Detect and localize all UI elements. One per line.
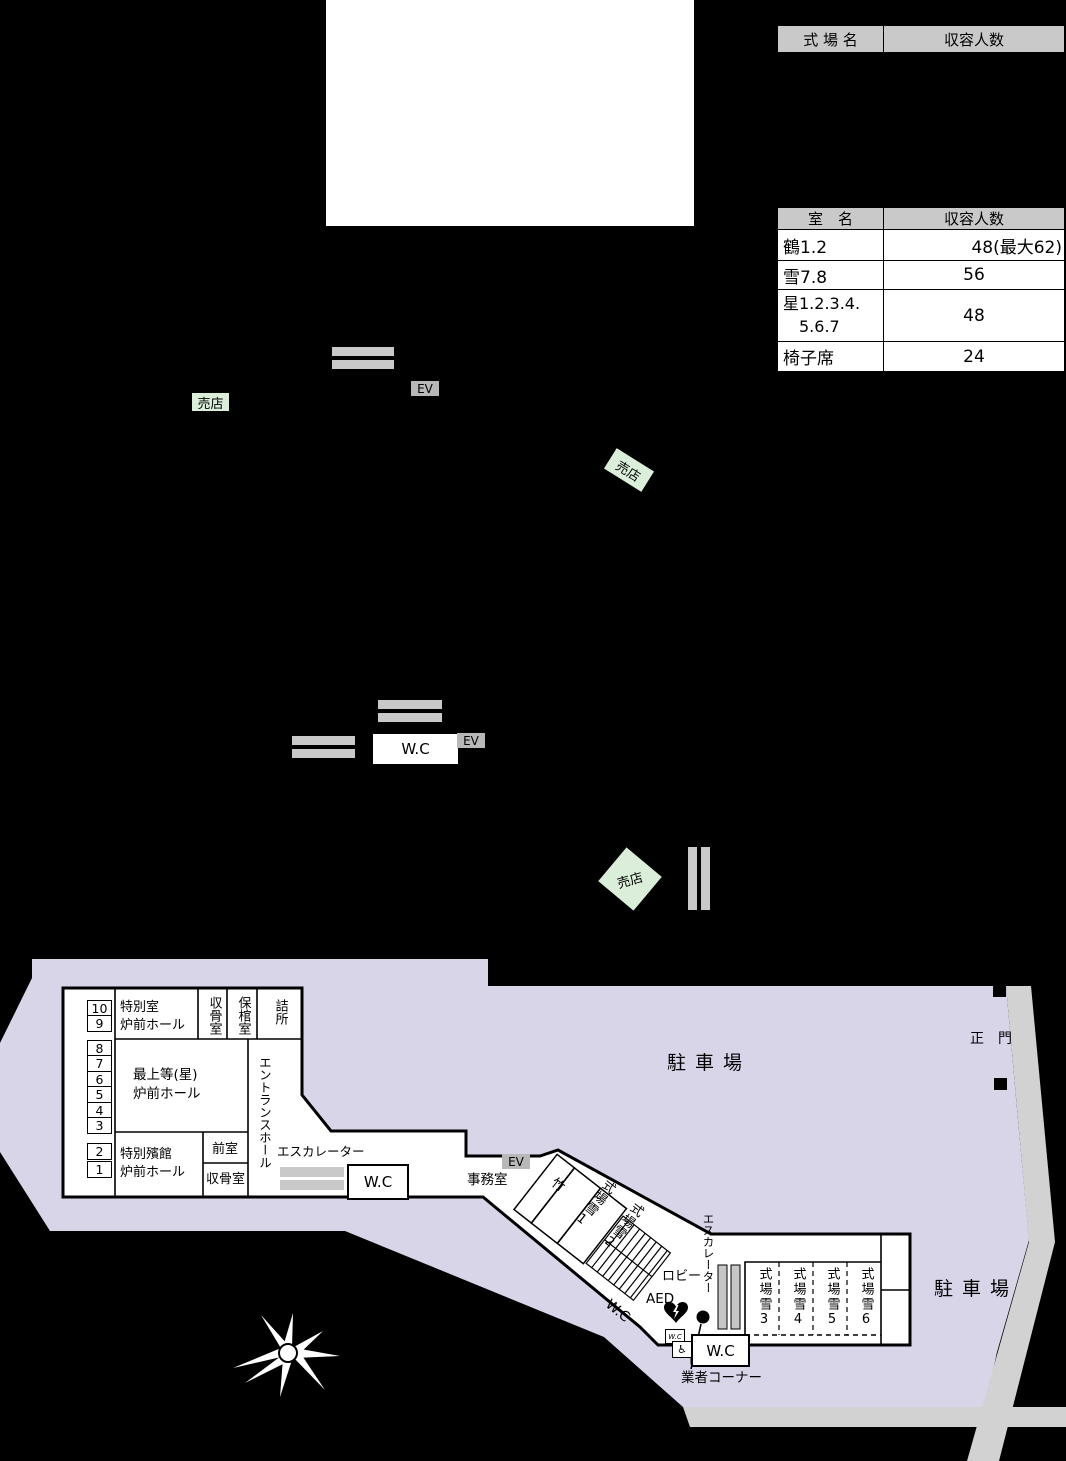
room-row-name: 鶴1.2 [778, 230, 884, 261]
wc-box: W.C [691, 1334, 750, 1367]
blank-panel [326, 0, 694, 226]
rooms-capacity-table: 室 名 収容人数 鶴1.2 48(最大62) 雪7.8 56 星1.2.3.4.… [777, 207, 1065, 372]
wc-box: W.C [347, 1164, 409, 1200]
wc-label: W.C [364, 1173, 392, 1191]
vendor-corner-dot [697, 1311, 710, 1324]
venues-col-name: 式 場 名 [778, 26, 884, 52]
wheelchair-box: ♿ [672, 1341, 692, 1358]
entrance-hall: エントランスホール [255, 1056, 272, 1169]
shop-label: 売店 [197, 393, 223, 412]
room-special-rozen-hall: 特別室 炉前ホール [120, 999, 185, 1035]
room-row-name: 雪7.8 [778, 261, 884, 290]
elevator-label: EV [508, 1155, 524, 1169]
cremator-numbers-10-9: 10 9 [87, 1000, 112, 1032]
room-row-capacity: 24 [884, 342, 1064, 371]
wc-label: W.C [401, 740, 429, 758]
stairs-bar [378, 700, 442, 709]
shop-box: 売店 [192, 393, 229, 411]
cremator-number: 1 [87, 1161, 112, 1178]
room-hokan: 保棺室 [234, 996, 252, 1035]
wheelchair-icon: ♿ [677, 1343, 687, 1356]
main-gate-label: 正 門 [970, 1030, 1012, 1049]
room-yuki3-label: 式場雪3 [755, 1267, 773, 1329]
cremator-number: 3 [87, 1117, 112, 1134]
room-zenshitsu: 前室 [212, 1141, 238, 1159]
escalator-label-vertical: エスカレーター [700, 1213, 716, 1294]
escalator-label: エスカレーター [277, 1144, 365, 1161]
wc-label: W.C [706, 1342, 734, 1360]
room-row-name-line2: 5.6.7 [783, 317, 840, 336]
room-yuki5-label: 式場雪5 [823, 1267, 841, 1329]
room-label: 特別殯館 [120, 1147, 172, 1162]
stairs-bar [378, 713, 442, 722]
starburst-icon [233, 1313, 340, 1397]
room-row-name-lines: 星1.2.3.4.5.6.7 [783, 293, 860, 338]
room-label: 炉前ホール [120, 1018, 185, 1033]
stairs-bar [332, 360, 394, 369]
cremator-number: 9 [87, 1015, 112, 1032]
room-row-name: 椅子席 [778, 342, 884, 371]
room-hinkan-rozen-hall: 特別殯館 炉前ホール [120, 1146, 185, 1182]
wc-box: W.C [371, 732, 460, 766]
road-bottom [683, 1407, 1066, 1427]
gate-post-top [993, 985, 1006, 997]
elevator-label: EV [417, 382, 433, 396]
room-row-capacity: 48(最大62) [884, 230, 1064, 261]
room-row-name-line1: 星1.2.3.4. [783, 294, 860, 313]
room-saijoto-rozen-hall: 最上等(星) 炉前ホール [133, 1066, 201, 1104]
room-yuki6-label: 式場雪6 [857, 1267, 875, 1329]
elevator-label: EV [463, 734, 479, 748]
elevator-box: EV [457, 733, 485, 748]
stairs-bar [332, 347, 394, 356]
room-row-name: 星1.2.3.4.5.6.7 [778, 290, 884, 342]
escalator-bar [280, 1167, 344, 1177]
parking-label-top: 駐車場 [667, 1051, 751, 1077]
stairs-bar [292, 749, 355, 758]
office-label: 事務室 [467, 1171, 508, 1189]
room-label: 特別室 [120, 1000, 159, 1015]
room-tsumesho: 詰所 [271, 999, 289, 1025]
gate-post-bottom [994, 1078, 1007, 1090]
stairs-bar [292, 736, 355, 745]
vendor-corner-label: 業者コーナー [681, 1369, 762, 1387]
rooms-col-capacity: 収容人数 [884, 208, 1064, 230]
lobby-label: ロビー [662, 1268, 701, 1286]
cremator-numbers-8-3: 8 7 6 5 4 3 [87, 1040, 112, 1134]
cremator-number: 2 [87, 1143, 112, 1160]
room-shukotsu-top: 収骨室 [205, 996, 223, 1035]
passage-bar [701, 847, 710, 910]
room-label: 炉前ホール [133, 1086, 201, 1102]
venues-col-capacity: 収容人数 [884, 26, 1064, 52]
room-label: 最上等(星) [133, 1067, 198, 1083]
aed-label: AED [646, 1290, 674, 1308]
room-row-capacity: 56 [884, 261, 1064, 290]
parking-label-right: 駐車場 [934, 1277, 1018, 1303]
room-row-capacity: 48 [884, 290, 1064, 342]
passage-bar [688, 847, 697, 910]
escalator-bar [280, 1180, 344, 1190]
rooms-col-name: 室 名 [778, 208, 884, 230]
room-shukotsu-bottom: 収骨室 [206, 1171, 245, 1189]
elevator-box: EV [411, 381, 439, 396]
elevator-box: EV [502, 1154, 530, 1169]
shop-label: 売店 [615, 866, 645, 891]
room-yuki4-label: 式場雪4 [789, 1267, 807, 1329]
wc-label: W.C [668, 1333, 681, 1341]
room-label: 炉前ホール [120, 1165, 185, 1180]
facility-map-page: 式 場 名 収容人数 室 名 収容人数 鶴1.2 48(最大62) 雪7.8 5… [0, 0, 1066, 1461]
venues-capacity-table: 式 場 名 収容人数 [777, 25, 1065, 53]
